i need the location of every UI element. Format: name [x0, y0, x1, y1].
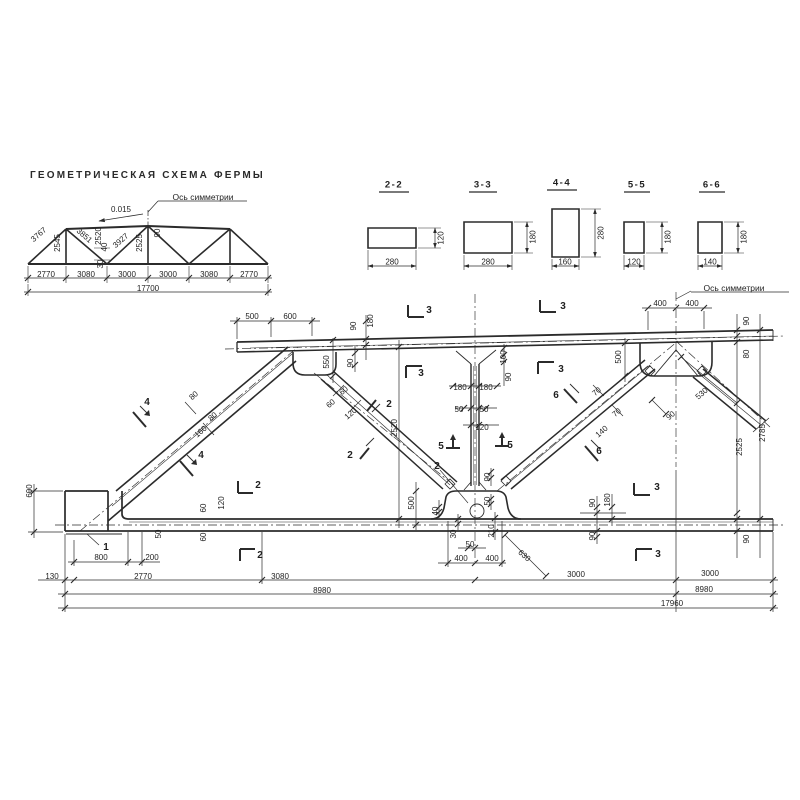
- section-view-name: 3-3: [474, 180, 492, 191]
- section-mark: 3: [558, 365, 564, 375]
- dim-label: 3000: [701, 570, 719, 578]
- dim-label: 800: [94, 554, 107, 562]
- dim-label: 90: [347, 359, 355, 368]
- section-width: 280: [385, 258, 398, 267]
- section-mark: 3: [426, 306, 432, 316]
- dim-label: 400: [653, 300, 666, 308]
- dim-label: 400: [485, 555, 498, 563]
- dim-label: 100: [500, 350, 508, 363]
- dim-label: 180: [479, 384, 492, 392]
- section-mark: 5: [438, 442, 444, 452]
- dim-label: 50: [484, 497, 492, 506]
- section-view-name: 4-4: [553, 178, 571, 189]
- dim-label: 50: [155, 530, 163, 539]
- dim-label: 40: [432, 507, 440, 516]
- dimension-ticks: [31, 305, 776, 611]
- symmetry-axis-label-schema: Ось симметрии: [173, 193, 234, 202]
- section-mark: 3: [655, 550, 661, 560]
- dim-label: 210: [488, 524, 496, 537]
- dim-label: 2520: [391, 419, 399, 437]
- detail-mark: 2: [434, 462, 440, 472]
- dim-label: 180: [367, 314, 375, 327]
- dim-label: 90: [589, 532, 597, 541]
- section-mark: 3: [560, 302, 566, 312]
- drawing-title: ГЕОМЕТРИЧЕСКАЯ СХЕМА ФЕРМЫ: [30, 170, 265, 181]
- dim-label: 8980: [695, 586, 713, 594]
- detail-mark: 1: [103, 543, 109, 553]
- symmetry-axis-label-main: Ось симметрии: [704, 284, 765, 293]
- section-height: 280: [597, 226, 606, 239]
- dim-label: 120: [475, 424, 488, 432]
- section-mark: 2: [255, 481, 261, 491]
- dim-label: 90: [505, 373, 513, 382]
- dim-label: 3080: [200, 271, 218, 279]
- dim-label: 90: [743, 535, 751, 544]
- section-view-name: 5-5: [628, 180, 646, 191]
- section-mark: 3: [654, 483, 660, 493]
- dim-label: 30: [450, 530, 458, 539]
- dim-label: 30: [97, 260, 105, 269]
- dim-label: 500: [408, 496, 416, 509]
- section-width: 160: [558, 258, 571, 267]
- dim-label: 200: [145, 554, 158, 562]
- main-truss-members: [65, 330, 773, 534]
- dim-label: 2525: [136, 234, 144, 252]
- dim-label: 400: [454, 555, 467, 563]
- dim-label: 2770: [134, 573, 152, 581]
- dim-label: 3000: [159, 271, 177, 279]
- dim-label: 3000: [567, 571, 585, 579]
- section-height: 180: [529, 230, 538, 243]
- dim-label: 2525: [736, 438, 744, 456]
- section-height: 120: [437, 231, 446, 244]
- dim-label: 2545: [54, 234, 62, 252]
- dim-label: 3000: [118, 271, 136, 279]
- dim-label: 2770: [240, 271, 258, 279]
- section-height: 180: [664, 230, 673, 243]
- section-mark: 6: [553, 391, 559, 401]
- section-mark: 2: [347, 451, 353, 461]
- mounting-hole: [470, 504, 484, 518]
- section-mark: 5: [507, 441, 513, 451]
- dim-label: 3080: [77, 271, 95, 279]
- section-height: 180: [740, 230, 749, 243]
- dim-label: 500: [615, 350, 623, 363]
- section-view-name: 6-6: [703, 180, 721, 191]
- total-length: 17960: [661, 600, 683, 608]
- schema-total-length: 17700: [137, 285, 159, 293]
- dim-label: 50: [455, 406, 464, 414]
- dim-label: 8980: [313, 587, 331, 595]
- dim-label: 130: [45, 573, 58, 581]
- dim-label: 500: [245, 313, 258, 321]
- dim-label: 180: [604, 493, 612, 506]
- dim-label: 80: [743, 350, 751, 359]
- dim-label: 60: [200, 533, 208, 542]
- section-mark: 6: [596, 447, 602, 457]
- slope-value: 0.015: [111, 206, 131, 214]
- dim-label: 60: [200, 504, 208, 513]
- truss-drawing-linework: [0, 0, 800, 800]
- section-mark: 2: [386, 400, 392, 410]
- section-width: 120: [627, 258, 640, 267]
- section-mark: 4: [198, 451, 204, 461]
- section-width: 280: [481, 258, 494, 267]
- dim-label: 90: [350, 322, 358, 331]
- dim-label: 90: [743, 317, 751, 326]
- dim-label: 2785: [759, 424, 767, 442]
- dim-label: 3080: [271, 573, 289, 581]
- dim-label: 2770: [37, 271, 55, 279]
- dim-label: 90: [589, 499, 597, 508]
- dim-label: 550: [323, 355, 331, 368]
- bottom-node-haunch: [431, 491, 521, 519]
- section-view-name: 2-2: [385, 180, 403, 191]
- section-width: 140: [703, 258, 716, 267]
- dimension-lines: [28, 291, 789, 612]
- dim-label: 180: [453, 384, 466, 392]
- dim-label: 50: [480, 406, 489, 414]
- section-mark: 4: [144, 398, 150, 408]
- dim-label: 40: [101, 243, 109, 252]
- section-mark: 2: [257, 551, 263, 561]
- section-views: [368, 190, 744, 270]
- dim-label: 90: [154, 229, 162, 238]
- dim-label: 50: [466, 541, 475, 549]
- dim-label: 120: [218, 496, 226, 509]
- section-mark: 3: [418, 369, 424, 379]
- dim-label: 90: [484, 473, 492, 482]
- drawing-sheet: ГЕОМЕТРИЧЕСКАЯ СХЕМА ФЕРМЫ 2-2 280 120 3…: [0, 0, 800, 800]
- dim-label: 400: [685, 300, 698, 308]
- dim-label: 600: [26, 484, 34, 497]
- dim-label: 600: [283, 313, 296, 321]
